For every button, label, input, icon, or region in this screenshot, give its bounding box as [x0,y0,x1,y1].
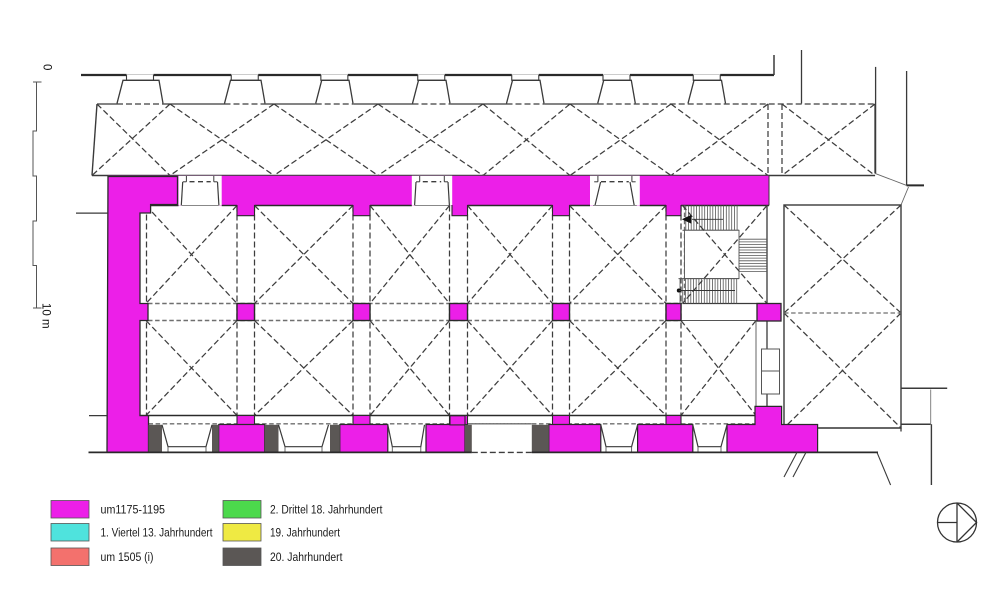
svg-text:19. Jahrhundert: 19. Jahrhundert [270,525,340,539]
svg-text:um 1505 (i): um 1505 (i) [101,550,154,564]
svg-text:2. Drittel 18. Jahrhundert: 2. Drittel 18. Jahrhundert [270,502,383,516]
svg-text:um1175-1195: um1175-1195 [101,502,166,516]
svg-text:10 m: 10 m [40,303,52,329]
svg-text:20. Jahrhundert: 20. Jahrhundert [270,550,343,564]
svg-text:1. Viertel 13. Jahrhundert: 1. Viertel 13. Jahrhundert [101,525,213,539]
svg-text:0: 0 [41,64,53,70]
